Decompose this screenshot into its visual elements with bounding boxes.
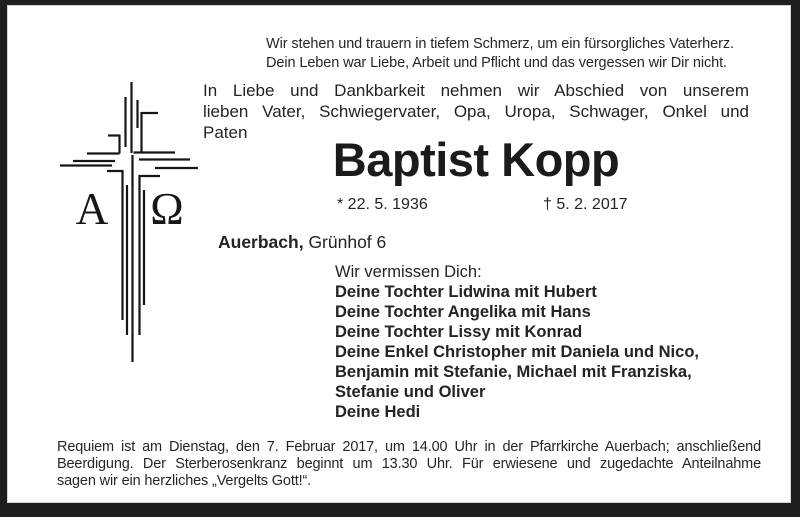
alpha-letter: A [76,184,109,234]
birth-date: * 22. 5. 1936 [337,196,428,214]
death-notice: A Ω Wir stehen und trauern in tiefem Sch… [0,0,800,517]
funeral-line: Beerdigung. Der Sterberosenkranz beginnt… [57,456,761,473]
alpha-omega-cross-graphic: A Ω [50,78,210,370]
funeral-line: Requiem ist am Dienstag, den 7. Februar … [57,439,761,456]
frame-border-bottom [0,503,800,517]
frame-border-top [0,0,800,5]
residence-line: Auerbach, Grünhof 6 [218,232,386,253]
funeral-info: Requiem ist am Dienstag, den 7. Februar … [57,439,761,491]
mourner-line: Deine Tochter Lidwina mit Hubert [335,282,755,302]
death-date: † 5. 2. 2017 [543,196,628,214]
mourner-line: Benjamin mit Stefanie, Michael mit Franz… [335,362,755,382]
residence-address: Grünhof 6 [304,232,387,252]
verse-line: Dein Leben war Liebe, Arbeit und Pflicht… [266,54,766,73]
mourner-line: Deine Enkel Christopher mit Daniela und … [335,342,755,362]
verse-line: Wir stehen und trauern in tiefem Schmerz… [266,35,766,54]
mourner-line: Deine Tochter Lissy mit Konrad [335,322,755,342]
opening-verse: Wir stehen und trauern in tiefem Schmerz… [266,35,766,72]
frame-border-right [791,0,800,517]
residence-city: Auerbach, [218,232,304,252]
cross-icon: A Ω [50,78,210,370]
intro-line: lieben Vater, Schwiegervater, Opa, Uropa… [203,101,749,122]
funeral-line: sagen wir ein herzliches „Vergelts Gott!… [57,473,761,490]
frame-border-left [0,0,7,517]
deceased-name: Baptist Kopp [203,134,749,186]
mourner-line: Stefanie und Oliver [335,382,755,402]
intro-line: In Liebe und Dankbarkeit nehmen wir Absc… [203,80,749,101]
mourners-heading: Wir vermissen Dich: [335,262,755,282]
mourner-line: Deine Tochter Angelika mit Hans [335,302,755,322]
mourners-list: Wir vermissen Dich: Deine Tochter Lidwin… [335,262,755,422]
omega-letter: Ω [150,184,183,234]
mourner-line: Deine Hedi [335,402,755,422]
